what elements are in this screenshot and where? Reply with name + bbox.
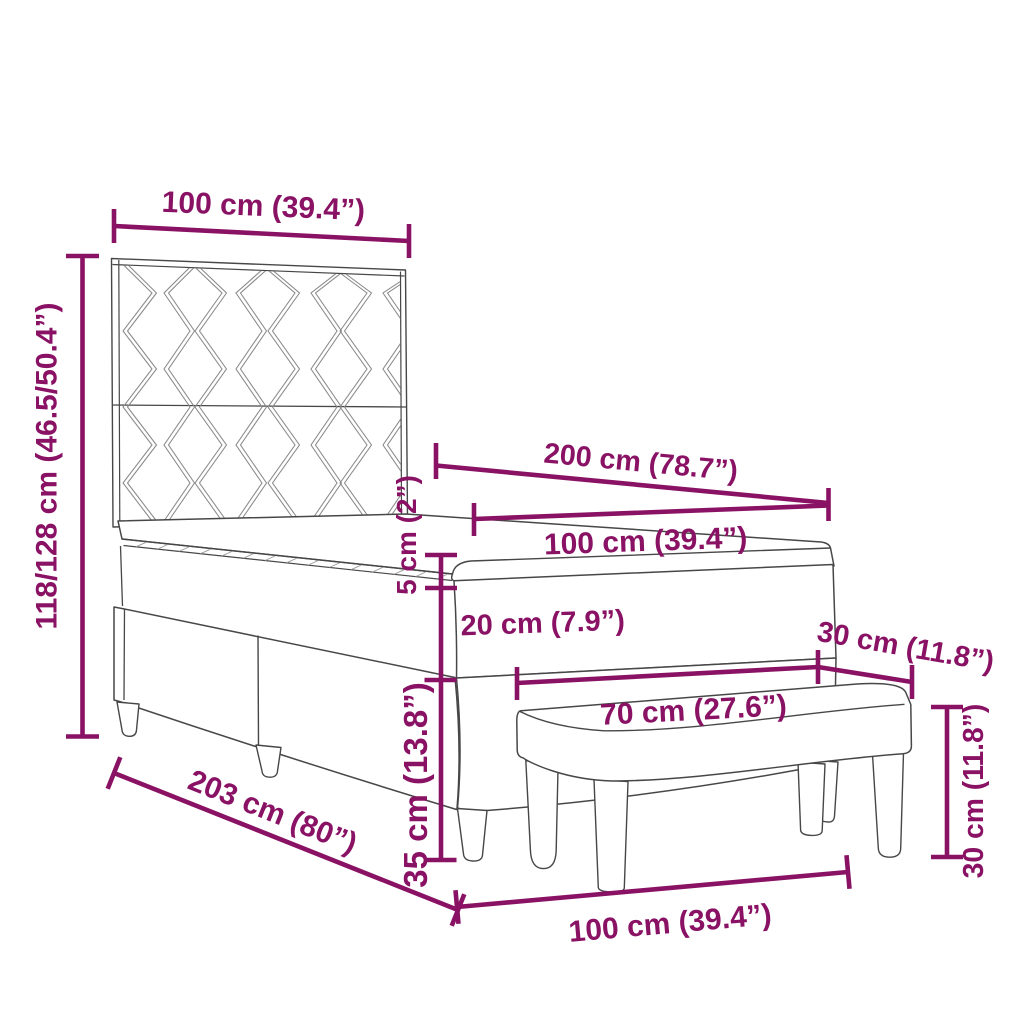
svg-text:5 cm (2”): 5 cm (2”) — [391, 475, 422, 595]
svg-text:30 cm (11.8”): 30 cm (11.8”) — [957, 704, 989, 879]
svg-text:35 cm (13.8”): 35 cm (13.8”) — [397, 682, 434, 887]
svg-text:20 cm (7.9”): 20 cm (7.9”) — [460, 605, 625, 643]
svg-text:118/128 cm (46.5/50.4”): 118/128 cm (46.5/50.4”) — [31, 303, 64, 630]
